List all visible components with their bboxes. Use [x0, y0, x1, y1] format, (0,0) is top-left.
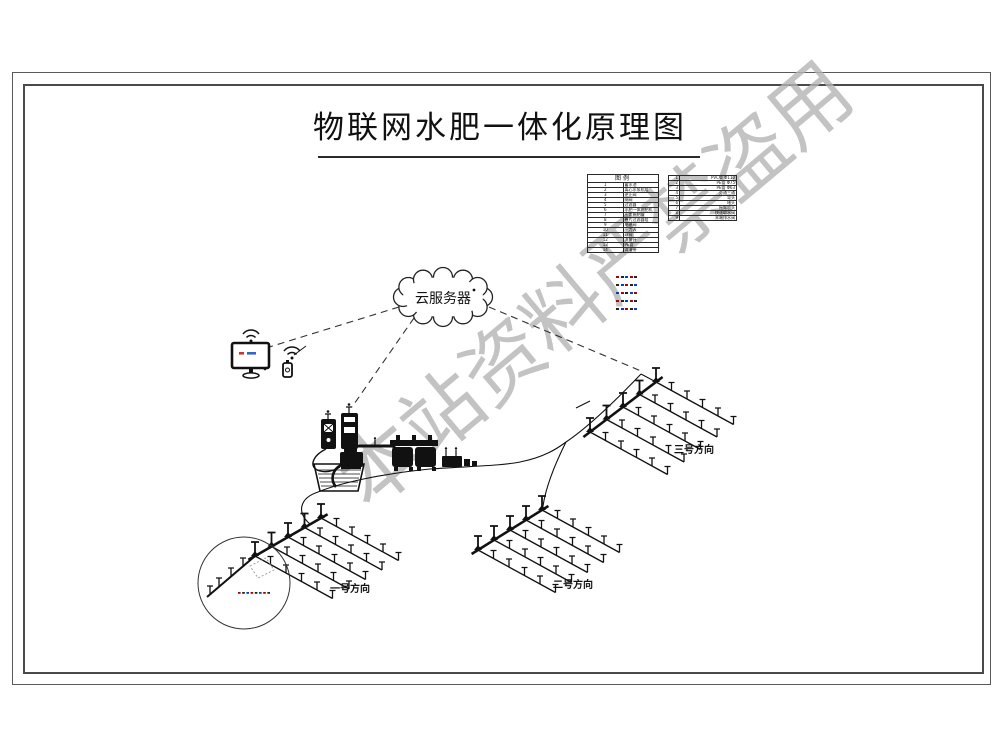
field-grid-2 — [472, 496, 623, 593]
mobile-terminal-icon — [283, 346, 306, 377]
sprinkler-line — [207, 556, 255, 597]
field2-label: 二号方向 — [553, 578, 593, 591]
legend-table-main: 图例 1蓄水池 2离心水泵机组 3逆止阀 4闸阀 5过滤器 6水肥一体施肥机 7… — [587, 174, 659, 253]
field1-label: 一号方向 — [330, 582, 370, 595]
detail-callout — [198, 537, 290, 629]
fertilizer-tank-icon — [321, 410, 336, 449]
detail-annotation-dashes — [238, 592, 270, 594]
line-sample-row — [616, 300, 639, 302]
cloud-dot — [473, 289, 476, 292]
legend-row: 9末端排水阀 — [669, 216, 737, 221]
fertilizer-tank-icon — [341, 403, 358, 449]
line-sample-row — [616, 308, 639, 310]
legend-title: 图例 — [588, 175, 659, 183]
wifi-icon — [284, 347, 300, 360]
screen-red-bar — [239, 352, 244, 355]
field3-label: 三号方向 — [674, 443, 714, 456]
field-grid-3 — [583, 368, 736, 475]
legend-row: 14滴灌带 — [588, 248, 659, 253]
line-sample-row — [616, 292, 639, 294]
cloud-server-label: 云服务器 — [415, 291, 471, 307]
wifi-icon — [243, 330, 259, 343]
line-type-samples — [616, 276, 639, 316]
cloud-server-icon: 云服务器 — [394, 268, 493, 327]
schematic-canvas: 本站资料严禁盗用 云服务器 — [0, 0, 1000, 750]
line-sample-row — [616, 276, 639, 278]
legend-table-secondary: 1PVC管 Φ110 2PE管 Φ75 3PE管 Φ63 4旁通三通 5弯头 6… — [668, 175, 737, 221]
line-sample-row — [616, 284, 639, 286]
screen-blue-bar — [247, 352, 256, 355]
monitor-icon — [232, 343, 269, 378]
